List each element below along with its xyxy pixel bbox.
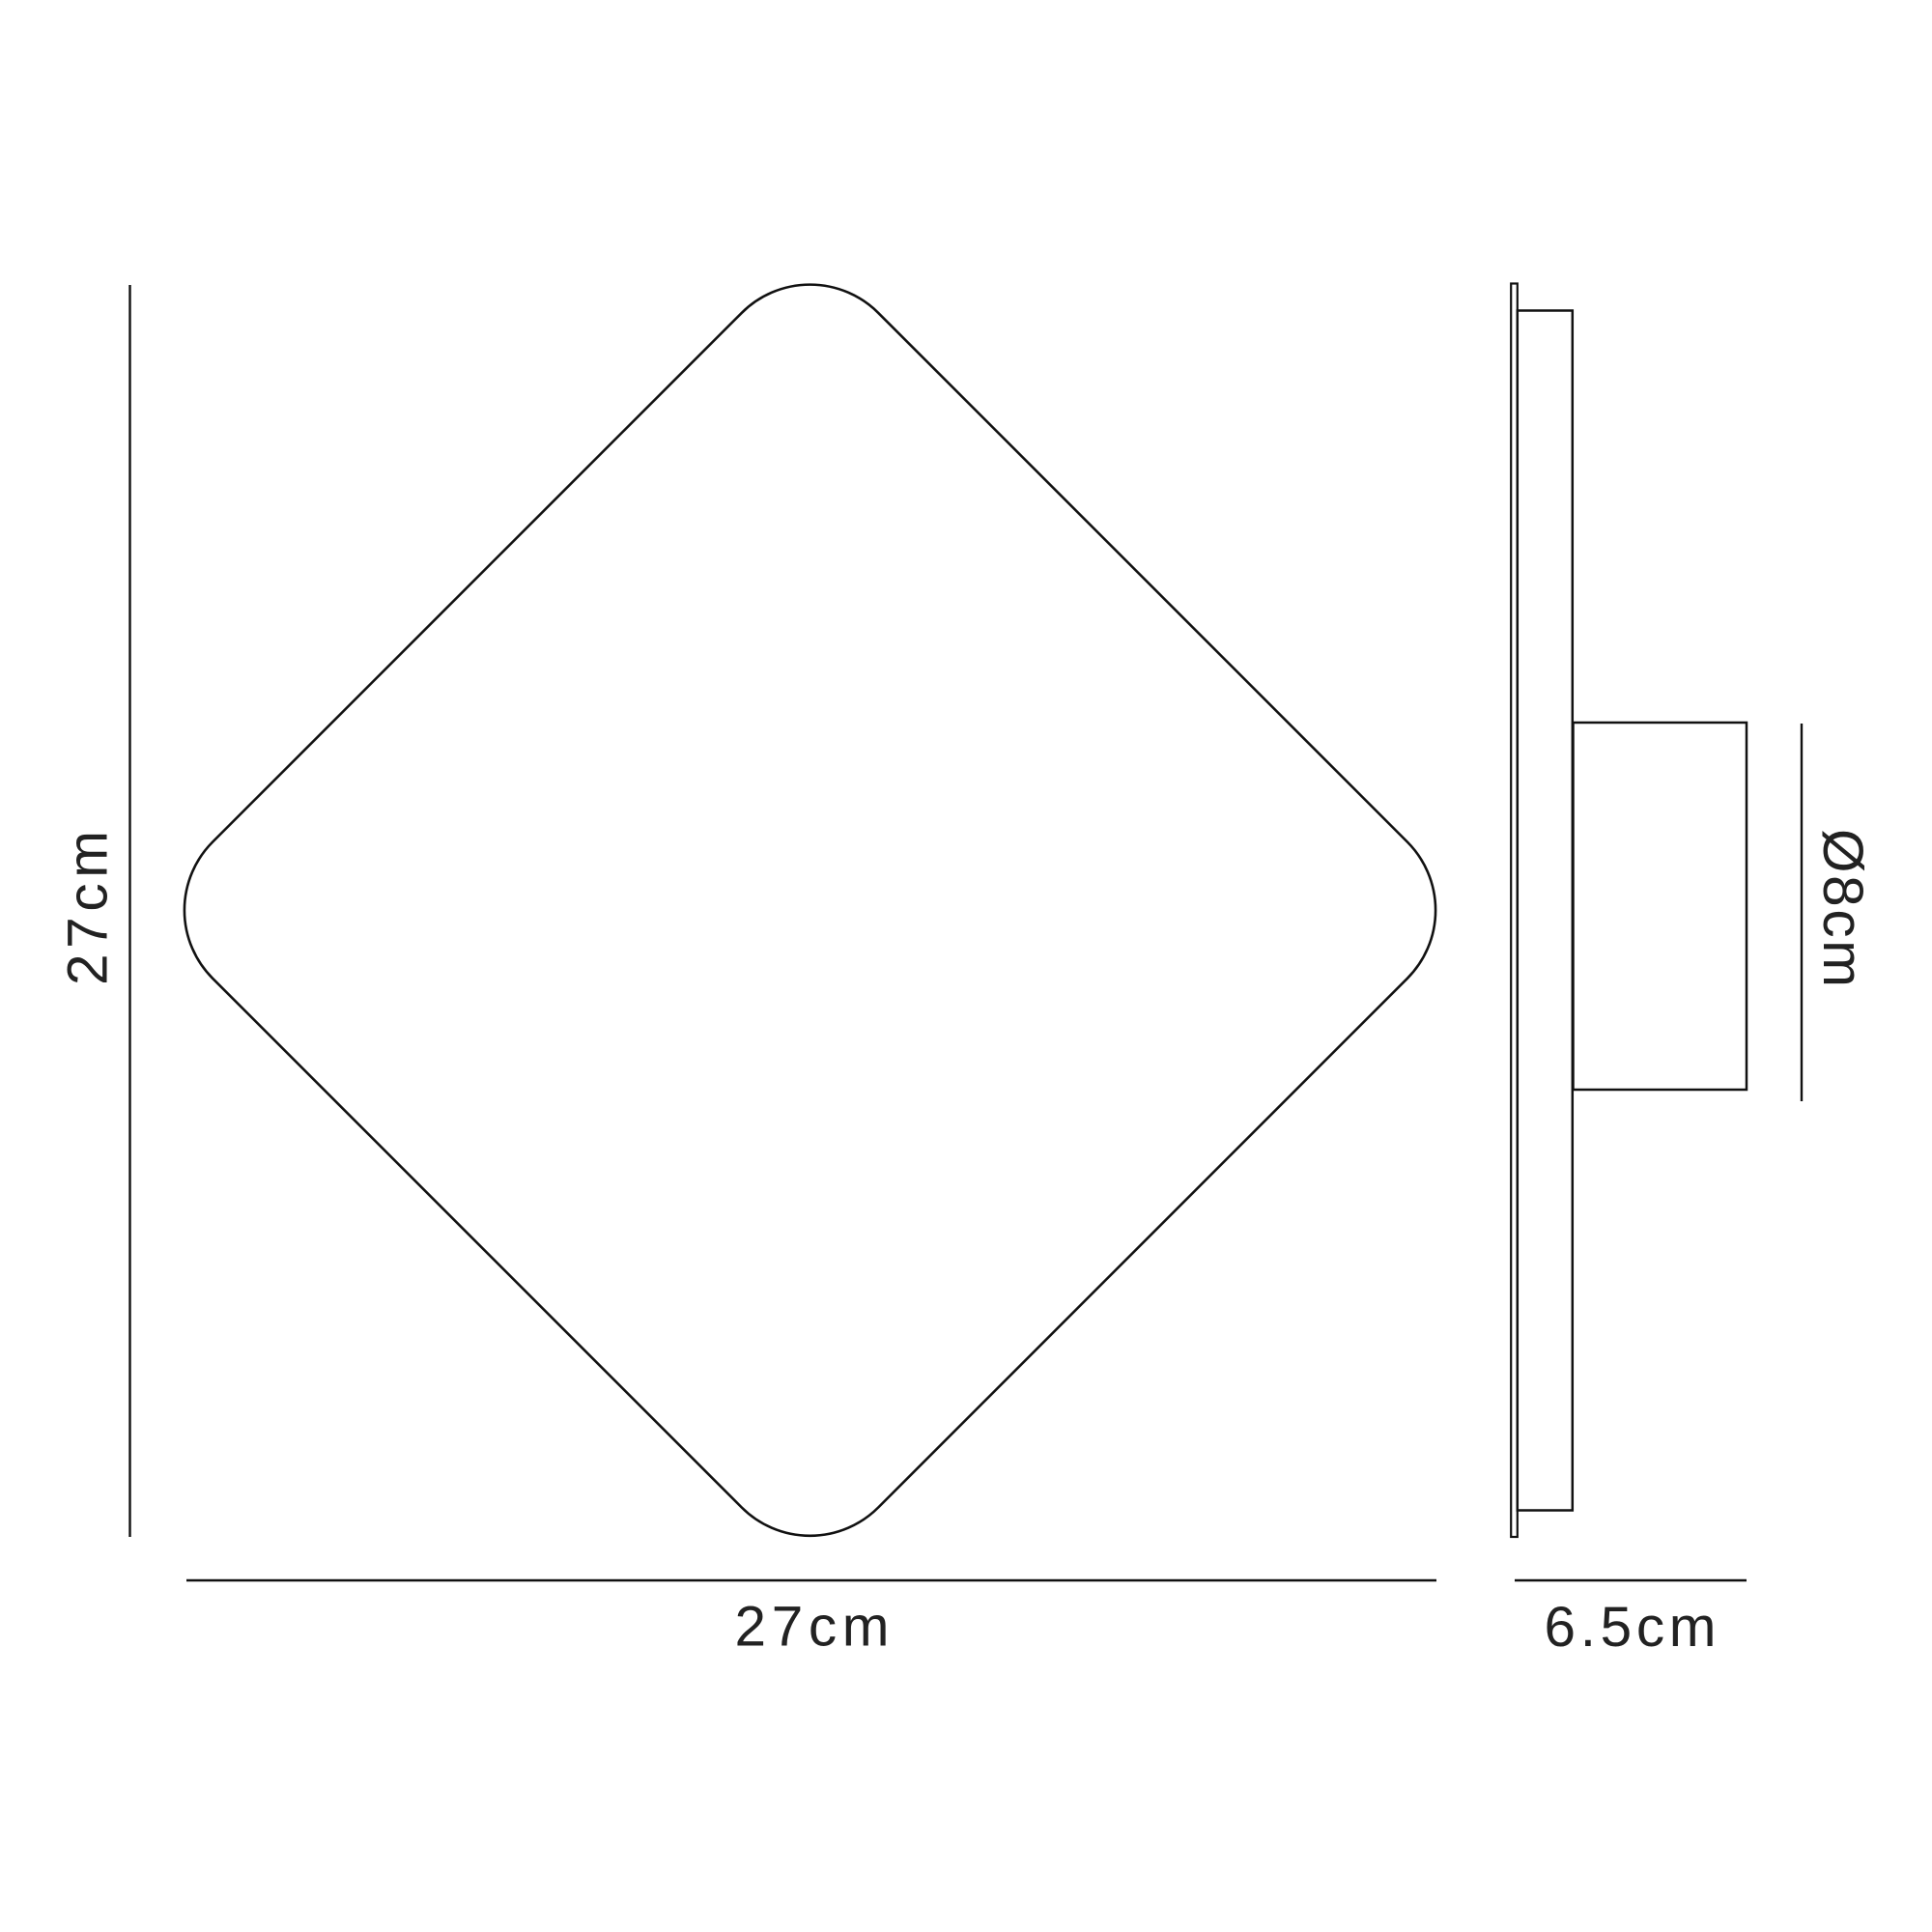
svg-text:27cm: 27cm (735, 1596, 890, 1659)
svg-text:27cm: 27cm (57, 831, 120, 985)
svg-text:6.5cm: 6.5cm (1545, 1596, 1717, 1659)
